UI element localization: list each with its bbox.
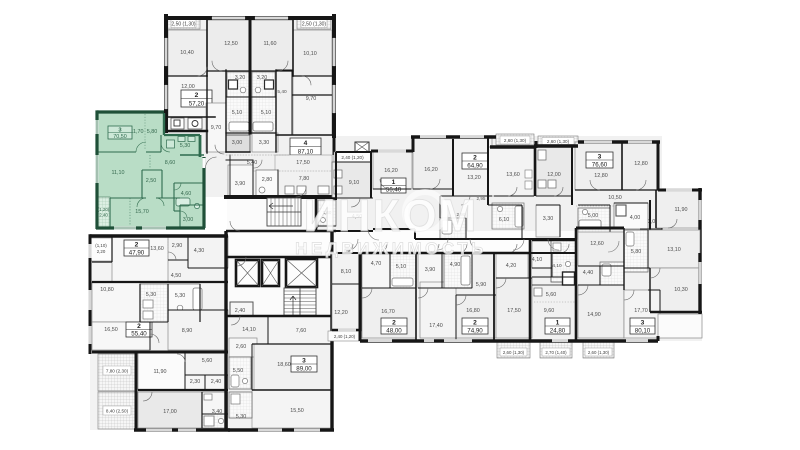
svg-text:5,30: 5,30 [175, 293, 186, 299]
svg-text:7,60: 7,60 [296, 328, 307, 334]
svg-text:89,00: 89,00 [296, 366, 312, 373]
svg-text:57,20: 57,20 [189, 101, 205, 108]
svg-text:(1,20): (1,20) [98, 207, 110, 212]
svg-text:3: 3 [302, 358, 306, 365]
svg-text:3,90: 3,90 [235, 181, 246, 187]
svg-text:8,60: 8,60 [165, 160, 176, 166]
svg-text:5,10: 5,10 [261, 110, 272, 116]
svg-text:2,60 (1,30): 2,60 (1,30) [504, 138, 527, 143]
svg-text:17,50: 17,50 [507, 308, 521, 314]
svg-text:2,50 (1,30): 2,50 (1,30) [171, 22, 196, 28]
svg-text:4,70: 4,70 [371, 261, 382, 267]
svg-text:3,00: 3,00 [183, 217, 194, 223]
svg-text:2,30: 2,30 [190, 379, 201, 385]
svg-text:12,50: 12,50 [224, 41, 238, 47]
svg-text:16,80: 16,80 [466, 308, 480, 314]
svg-text:2,60 (1,30): 2,60 (1,30) [588, 350, 610, 355]
svg-text:4,10: 4,10 [552, 263, 562, 269]
svg-text:3: 3 [598, 154, 602, 161]
svg-text:5,00: 5,00 [588, 213, 599, 219]
svg-text:15,70: 15,70 [135, 209, 149, 215]
svg-text:12,00: 12,00 [547, 172, 561, 178]
svg-text:2,60: 2,60 [236, 344, 247, 350]
svg-text:17,70: 17,70 [634, 308, 648, 314]
svg-text:2,20: 2,20 [97, 249, 106, 254]
svg-text:6,10: 6,10 [499, 217, 510, 223]
svg-text:11,90: 11,90 [674, 207, 687, 213]
svg-text:4: 4 [304, 140, 308, 147]
svg-text:16,20: 16,20 [424, 167, 438, 173]
svg-text:8,10: 8,10 [341, 269, 352, 275]
svg-text:2,50 (1,30): 2,50 (1,30) [302, 22, 327, 28]
svg-text:2,40 (1,20): 2,40 (1,20) [334, 334, 356, 339]
svg-text:11,90: 11,90 [153, 369, 166, 375]
svg-text:5,90: 5,90 [476, 282, 487, 288]
svg-text:5,30: 5,30 [146, 292, 157, 298]
svg-text:76,60: 76,60 [592, 162, 608, 169]
svg-text:16,50: 16,50 [104, 327, 118, 333]
svg-text:(1,10): (1,10) [95, 243, 107, 248]
svg-text:55,40: 55,40 [131, 331, 147, 338]
svg-text:12,80: 12,80 [634, 161, 648, 167]
svg-text:2,40 (1,20): 2,40 (1,20) [341, 155, 364, 160]
svg-text:ИНКОМ: ИНКОМ [304, 190, 479, 241]
svg-text:10,10: 10,10 [303, 51, 317, 57]
svg-text:4,00: 4,00 [630, 215, 641, 221]
svg-text:10,40: 10,40 [180, 50, 194, 56]
svg-text:2,60 (1,30): 2,60 (1,30) [503, 350, 525, 355]
svg-text:12,00: 12,00 [181, 84, 195, 90]
svg-text:4,10: 4,10 [532, 257, 543, 263]
svg-text:4,50: 4,50 [171, 273, 182, 279]
svg-text:18,60: 18,60 [277, 362, 291, 368]
svg-text:11,10: 11,10 [111, 170, 124, 176]
svg-text:2,80: 2,80 [262, 177, 273, 183]
svg-text:17,50: 17,50 [296, 160, 310, 166]
svg-text:2: 2 [137, 323, 141, 330]
svg-text:14,10: 14,10 [242, 327, 256, 333]
svg-text:9,70: 9,70 [306, 96, 317, 102]
svg-text:2: 2 [473, 155, 477, 162]
svg-text:4,60: 4,60 [181, 191, 192, 197]
svg-text:3,90: 3,90 [425, 267, 436, 273]
svg-text:16,70: 16,70 [381, 309, 395, 315]
svg-text:4,30: 4,30 [194, 248, 205, 254]
svg-text:7,80 (2,30): 7,80 (2,30) [106, 369, 129, 374]
svg-text:15,50: 15,50 [290, 408, 304, 414]
svg-text:2,60 (1,30): 2,60 (1,30) [547, 139, 570, 144]
svg-text:2,40: 2,40 [211, 379, 222, 385]
svg-text:9,10: 9,10 [349, 180, 360, 186]
svg-text:2,90: 2,90 [172, 243, 183, 249]
svg-text:64,90: 64,90 [467, 163, 483, 170]
svg-text:2: 2 [135, 242, 139, 249]
svg-text:12,20: 12,20 [334, 310, 348, 316]
svg-text:7,80: 7,80 [299, 176, 310, 182]
svg-text:17,40: 17,40 [429, 323, 443, 329]
svg-text:2,40: 2,40 [99, 213, 108, 218]
svg-text:5,80: 5,80 [631, 249, 642, 255]
svg-text:11,60: 11,60 [263, 41, 276, 47]
svg-text:17,00: 17,00 [163, 409, 177, 415]
svg-text:5,10: 5,10 [232, 110, 243, 116]
svg-text:10,50: 10,50 [608, 195, 622, 201]
svg-text:1: 1 [392, 179, 396, 186]
svg-text:70,50: 70,50 [113, 134, 127, 140]
svg-text:4,40: 4,40 [583, 270, 594, 276]
svg-text:5,40: 5,40 [277, 89, 287, 95]
svg-text:3,00: 3,00 [232, 140, 243, 146]
svg-text:2: 2 [195, 92, 199, 99]
svg-text:5,10: 5,10 [396, 264, 407, 270]
svg-text:48,00: 48,00 [386, 328, 402, 335]
svg-text:2,50: 2,50 [146, 178, 157, 184]
svg-text:13,10: 13,10 [667, 247, 681, 253]
svg-text:5,60: 5,60 [546, 292, 557, 298]
svg-text:НЕДВИЖИМОСТЬ: НЕДВИЖИМОСТЬ [295, 239, 487, 258]
svg-text:13,60: 13,60 [506, 172, 520, 178]
svg-text:5,60: 5,60 [202, 358, 213, 364]
svg-text:9,70: 9,70 [211, 125, 222, 131]
svg-text:5,30: 5,30 [236, 414, 247, 420]
svg-text:12,60: 12,60 [590, 241, 604, 247]
svg-text:8,40 (2,50): 8,40 (2,50) [106, 409, 129, 414]
svg-text:80,10: 80,10 [635, 328, 651, 335]
svg-text:47,90: 47,90 [129, 250, 145, 257]
svg-text:2: 2 [392, 320, 396, 327]
svg-text:13,20: 13,20 [467, 175, 481, 181]
svg-text:10,80: 10,80 [100, 287, 114, 293]
svg-text:24,80: 24,80 [550, 328, 566, 335]
svg-text:2,70 (1,40): 2,70 (1,40) [545, 350, 567, 355]
svg-text:8,90: 8,90 [182, 328, 193, 334]
svg-text:2,40: 2,40 [235, 308, 246, 314]
svg-text:87,10: 87,10 [298, 149, 314, 156]
svg-text:13,60: 13,60 [150, 246, 164, 252]
svg-text:2: 2 [473, 320, 477, 327]
svg-text:3: 3 [641, 320, 645, 327]
svg-text:14,90: 14,90 [587, 312, 601, 318]
svg-text:3,30: 3,30 [543, 216, 554, 222]
svg-text:5,80: 5,80 [147, 129, 158, 135]
svg-text:5,30: 5,30 [180, 143, 191, 149]
svg-text:9,60: 9,60 [544, 308, 555, 314]
svg-text:5,50: 5,50 [233, 368, 244, 374]
svg-text:11,70: 11,70 [130, 129, 143, 135]
svg-text:16,20: 16,20 [384, 168, 398, 174]
svg-text:4,90: 4,90 [450, 262, 461, 268]
svg-text:12,80: 12,80 [594, 173, 608, 179]
svg-text:3,30: 3,30 [259, 140, 270, 146]
svg-text:1: 1 [556, 320, 560, 327]
svg-text:10,30: 10,30 [674, 287, 688, 293]
svg-text:4,20: 4,20 [506, 263, 517, 269]
svg-text:74,90: 74,90 [467, 328, 483, 335]
